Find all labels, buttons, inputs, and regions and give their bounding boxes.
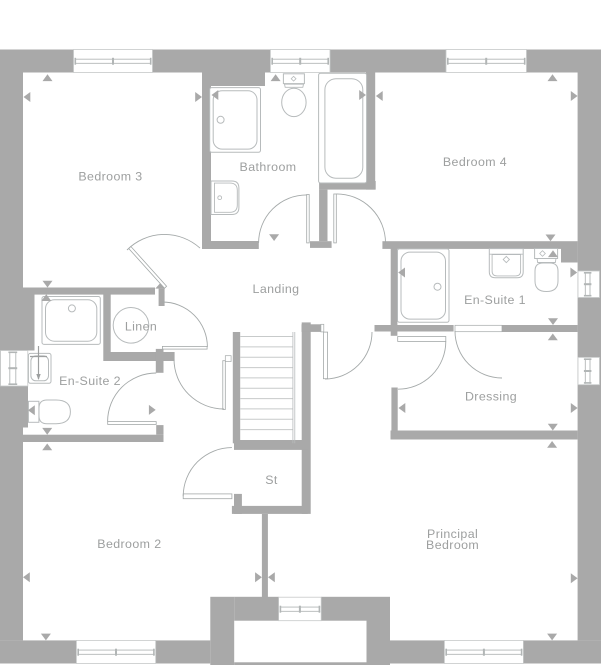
svg-text:Linen: Linen <box>125 320 157 334</box>
svg-text:Dressing: Dressing <box>465 390 517 404</box>
svg-text:Bedroom 3: Bedroom 3 <box>78 169 142 183</box>
svg-text:Landing: Landing <box>253 282 300 296</box>
svg-text:Bedroom 2: Bedroom 2 <box>97 537 161 551</box>
svg-text:En-Suite 1: En-Suite 1 <box>464 293 526 307</box>
svg-text:Bathroom: Bathroom <box>240 160 297 174</box>
svg-text:Bedroom 4: Bedroom 4 <box>443 155 507 169</box>
svg-text:En-Suite 2: En-Suite 2 <box>59 374 121 388</box>
svg-text:Bedroom: Bedroom <box>426 538 479 552</box>
svg-text:St: St <box>265 473 278 487</box>
